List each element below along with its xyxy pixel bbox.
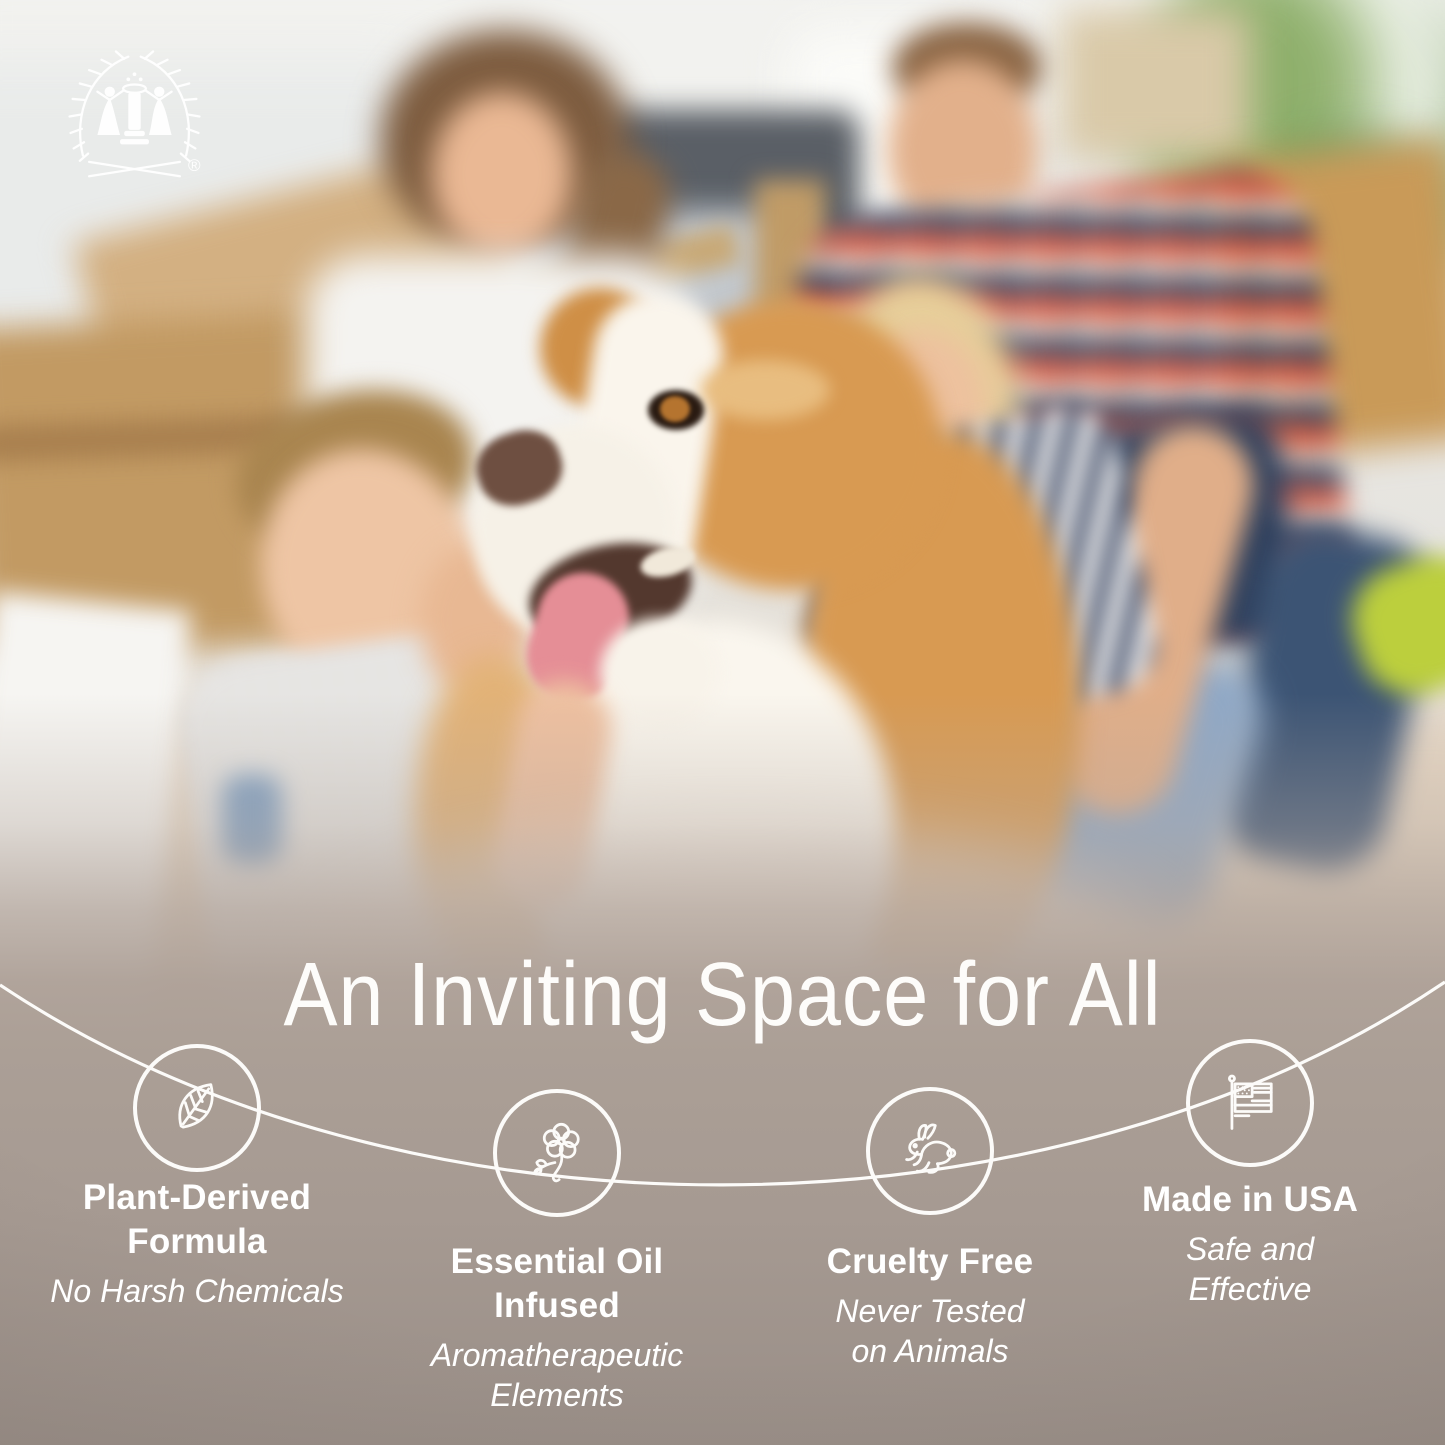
feature-circle-cruelty-free — [866, 1087, 994, 1215]
leaf-icon — [163, 1074, 231, 1142]
feature-subtitle: Aromatherapeutic Elements — [377, 1335, 737, 1415]
registered-trademark: ® — [188, 156, 201, 176]
feature-essential-oil: Essential Oil Infused Aromatherapeutic E… — [377, 1240, 737, 1415]
feature-title: Cruelty Free — [770, 1240, 1090, 1284]
feature-circle-plant-derived — [133, 1044, 261, 1172]
flower-icon — [523, 1119, 591, 1187]
headline: An Inviting Space for All — [72, 950, 1373, 1040]
feature-subtitle: Never Tested on Animals — [770, 1291, 1090, 1371]
feature-plant-derived: Plant-Derived Formula No Harsh Chemicals — [27, 1176, 367, 1311]
feature-subtitle: No Harsh Chemicals — [27, 1271, 367, 1311]
feature-circle-made-in-usa — [1186, 1039, 1314, 1167]
feature-title: Essential Oil Infused — [377, 1240, 737, 1328]
usa-flag-icon — [1216, 1069, 1284, 1137]
feature-title: Made in USA — [1090, 1178, 1410, 1222]
product-marketing-banner: ® An Inviting Space for All — [0, 0, 1445, 1445]
feature-subtitle: Safe and Effective — [1090, 1229, 1410, 1309]
feature-made-in-usa: Made in USA Safe and Effective — [1090, 1178, 1410, 1309]
brand-logo: ® — [52, 40, 217, 195]
feature-title: Plant-Derived Formula — [27, 1176, 367, 1264]
rabbit-icon — [896, 1117, 964, 1185]
feature-cruelty-free: Cruelty Free Never Tested on Animals — [770, 1240, 1090, 1371]
feature-circle-essential-oil — [493, 1089, 621, 1217]
